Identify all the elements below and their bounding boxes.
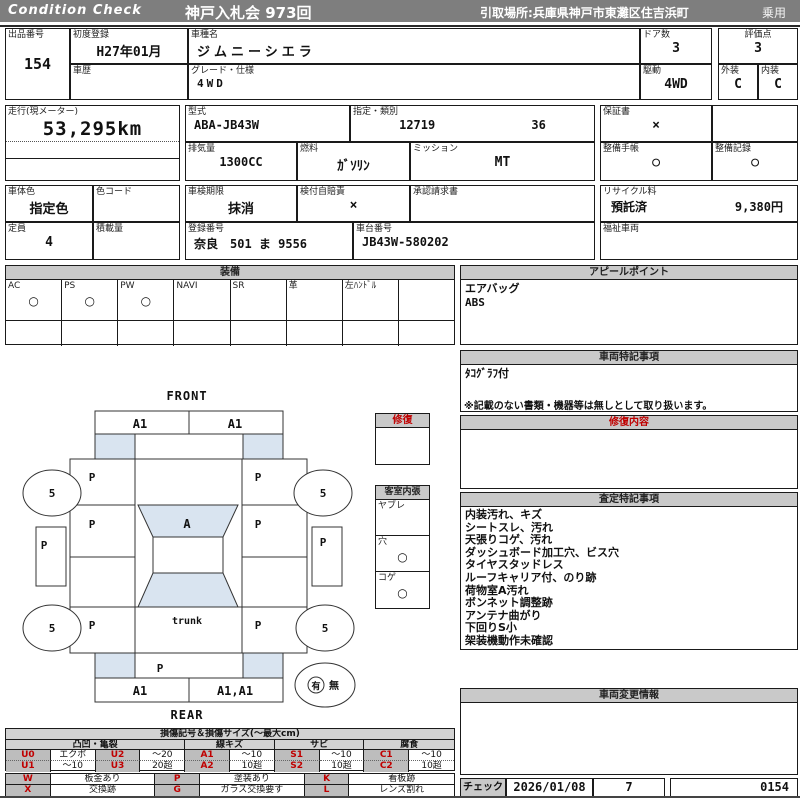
repair-flag-box: 修復 xyxy=(375,413,430,465)
bottom-rule xyxy=(0,796,800,798)
insurance-label: 検付自賠責 xyxy=(298,186,409,198)
maintenance-record-cell: 整備記録 ○ xyxy=(712,142,798,181)
taillight-left xyxy=(95,653,135,678)
check-inspector-value: 7 xyxy=(594,779,664,796)
first-registration-label: 初度登録 xyxy=(71,29,187,41)
legend-cell: U0 xyxy=(6,750,51,761)
damage-legend-table: 損傷記号＆損傷サイズ(～最大cm) 凸凹・亀裂 線キズ サビ 腐食 U0 エクボ… xyxy=(5,728,455,771)
legend-cell: U2 xyxy=(96,750,141,761)
recycle-fee-value: 9,380円 xyxy=(735,198,783,215)
exterior-grade-label: 外装 xyxy=(719,65,757,77)
displacement-label: 排気量 xyxy=(186,143,296,155)
cabin-lining-box: 客室内張 ヤブレ 穴 ○ コゲ ○ xyxy=(375,485,430,609)
windshield-mark: A xyxy=(183,517,191,531)
check-label-cell: チェック xyxy=(460,778,506,797)
warranty-value: × xyxy=(601,118,711,133)
fuel-value: ｶﾞｿﾘﾝ xyxy=(298,155,409,174)
insurance-cell: 検付自賠責 × xyxy=(297,185,410,222)
legend-cell: U1 xyxy=(6,761,51,772)
side-panel-left-mark: P xyxy=(41,539,48,552)
mileage-label: 走行(現メーター) xyxy=(6,106,179,118)
tear-label: ヤブレ xyxy=(376,500,429,512)
score-label: 評価点 xyxy=(719,29,797,41)
auction-title: 神戸入札会 973回 xyxy=(185,2,312,23)
burn-label: コゲ xyxy=(376,572,429,584)
check-date-cell: 2026/01/08 xyxy=(506,778,593,797)
doors-label: ドア数 xyxy=(641,29,711,41)
maintenance-book-label: 整備手帳 xyxy=(601,143,711,155)
legend-cell: ～10 xyxy=(230,750,275,761)
equipment-cell-extra xyxy=(399,280,454,320)
insurance-value: × xyxy=(298,198,409,213)
first-registration-value: H27年01月 xyxy=(71,41,187,60)
model-name-label: 車種名 xyxy=(189,29,639,41)
legend-cell: 10超 xyxy=(409,761,454,772)
equipment-title: 装備 xyxy=(6,266,454,280)
interior-grade-value: C xyxy=(759,77,797,92)
pickup-location: 引取場所:兵庫県神戸市東灘区住吉浜町 xyxy=(480,4,689,21)
maintenance-record-label: 整備記録 xyxy=(713,143,797,155)
vehicle-notes-panel: 車両特記事項 ﾀｺｸﾞﾗﾌ付 ※記載のない書類・機器等は無しとして取り扱います。 xyxy=(460,350,798,412)
legend-group: 凸凹・亀裂 xyxy=(6,740,185,749)
brand-title: Condition Check xyxy=(8,3,142,18)
drive-cell: 駆動 4WD xyxy=(640,64,712,100)
rear-bumper-left-mark: A1 xyxy=(133,684,147,698)
capacity-value: 4 xyxy=(6,235,92,250)
legend-cell: C1 xyxy=(364,750,409,761)
legend-cell: S2 xyxy=(275,761,320,772)
headlight-right xyxy=(243,434,283,459)
interior-grade-cell: 内装 C xyxy=(758,64,798,100)
legend-cell: 塗装あり xyxy=(200,774,305,784)
inspection-value: 抹消 xyxy=(186,198,296,217)
maintenance-book-value: ○ xyxy=(601,155,711,170)
repair-content-body xyxy=(461,430,797,434)
chassis-number-label: 車台番号 xyxy=(354,223,594,235)
wheel-front-left-mark: 5 xyxy=(49,487,56,500)
check-inspector-cell: 7 xyxy=(593,778,665,797)
fender-left-mark: P xyxy=(89,471,96,484)
drive-label: 駆動 xyxy=(641,65,711,77)
front-bumper-left-mark: A1 xyxy=(133,417,147,431)
roof xyxy=(153,537,223,573)
equipment-cell-navi: NAVI xyxy=(174,280,230,320)
repair-legend-table: W 板金あり P 塗装あり K 看板跡 X 交換跡 G ガラス交換要す L レン… xyxy=(5,773,455,797)
legend-cell: S1 xyxy=(275,750,320,761)
fender-right-mark: P xyxy=(255,471,262,484)
change-info-body xyxy=(461,703,797,707)
equipment-cell-ps: PS ○ xyxy=(62,280,118,320)
body-color-cell: 車体色 指定色 xyxy=(5,185,93,222)
legend-group: 線キズ xyxy=(185,740,275,749)
legend-cell: C2 xyxy=(364,761,409,772)
wheel-rear-right-mark: 5 xyxy=(322,622,329,635)
assessment-panel: 査定特記事項 内装汚れ、キズ シートスレ、汚れ 天張りコゲ、汚れ ダッシュボード… xyxy=(460,492,798,650)
chassis-number-cell: 車台番号 JB43W-580202 xyxy=(353,222,595,260)
change-info-title: 車両変更情報 xyxy=(461,689,797,703)
displacement-cell: 排気量 1300CC xyxy=(185,142,297,181)
model-code-label: 型式 xyxy=(186,106,349,118)
lot-number-label: 出品番号 xyxy=(6,29,69,41)
assessment-line: 天張りコゲ、汚れ xyxy=(465,534,793,547)
class-number: 36 xyxy=(531,118,545,132)
presence-stamp xyxy=(295,663,355,707)
transmission-value: MT xyxy=(411,155,594,170)
approval-cell: 承認請求書 xyxy=(410,185,595,222)
repair-flag-title: 修復 xyxy=(376,414,429,428)
door-left-mark: P xyxy=(89,518,96,531)
legend-cell: ガラス交換要す xyxy=(200,785,305,796)
rear-window xyxy=(138,573,238,607)
inspection-label: 車検期限 xyxy=(186,186,296,198)
appeal-line: エアバッグ xyxy=(465,282,793,296)
wheel-front-right-mark: 5 xyxy=(320,487,327,500)
chassis-number-value: JB43W-580202 xyxy=(354,235,594,249)
grade-cell: グレード・仕様 4WD xyxy=(188,64,640,100)
history-label: 車歴 xyxy=(71,65,187,77)
front-bumper-right-mark: A1 xyxy=(228,417,242,431)
lot-number-value: 154 xyxy=(6,55,69,73)
legend-cell: エクボ xyxy=(51,750,96,761)
transmission-cell: ミッション MT xyxy=(410,142,595,181)
trunk-label: trunk xyxy=(172,616,202,627)
equipment-cell-ac: AC ○ xyxy=(6,280,62,320)
registration-number-label: 登録番号 xyxy=(186,223,352,235)
serial-number-cell: 0154 xyxy=(670,778,798,797)
rear-panel-mark: P xyxy=(157,662,164,675)
vehicle-notes-disclaimer: ※記載のない書類・機器等は無しとして取り扱います。 xyxy=(461,397,797,412)
equipment-table: 装備 AC ○ PS ○ PW ○ NAVI SR 革 xyxy=(5,265,455,345)
side-panel-right xyxy=(312,527,342,586)
grade-label: グレード・仕様 xyxy=(189,65,639,77)
wheel-rear-left-mark: 5 xyxy=(49,622,56,635)
legend-cell: 10超 xyxy=(230,761,275,772)
legend-cell: G xyxy=(155,785,200,796)
welfare-cell: 福祉車両 xyxy=(600,222,798,260)
equipment-cell-sr: SR xyxy=(231,280,287,320)
load-label: 積載量 xyxy=(94,223,179,235)
recycle-fee-label: リサイクル料 xyxy=(601,186,797,198)
assessment-line: 内装汚れ、キズ xyxy=(465,509,793,522)
inspection-cell: 車検期限 抹消 xyxy=(185,185,297,222)
color-code-label: 色コード xyxy=(94,186,179,198)
type-number: 12719 xyxy=(399,118,435,132)
exterior-grade-value: C xyxy=(719,77,757,92)
mileage-cell: 走行(現メーター) 53,295km xyxy=(5,105,180,181)
equipment-cell-leather: 革 xyxy=(287,280,343,320)
door-right-mark: P xyxy=(255,518,262,531)
model-code-value: ABA-JB43W xyxy=(186,118,349,132)
check-date-value: 2026/01/08 xyxy=(507,779,592,796)
legend-cell: 10超 xyxy=(320,761,365,772)
legend-cell: A1 xyxy=(185,750,230,761)
assessment-title: 査定特記事項 xyxy=(461,493,797,507)
body-color-value: 指定色 xyxy=(6,198,92,217)
warranty-label: 保証書 xyxy=(601,106,711,118)
legend-cell: ～10 xyxy=(51,761,96,772)
appeal-points-title: アピールポイント xyxy=(461,266,797,280)
side-panel-right-mark: P xyxy=(320,536,327,549)
model-name-cell: 車種名 ジムニーシエラ xyxy=(188,28,640,64)
fuel-label: 燃料 xyxy=(298,143,409,155)
lot-number-cell: 出品番号 154 xyxy=(5,28,70,100)
header-bar: Condition Check 神戸入札会 973回 引取場所:兵庫県神戸市東灘… xyxy=(0,0,800,22)
recycle-status: 預託済 xyxy=(611,198,647,215)
diagram-front-label: FRONT xyxy=(166,389,207,403)
assessment-line: ボンネット調整跡 xyxy=(465,597,793,610)
load-cell: 積載量 xyxy=(93,222,180,260)
registration-number-cell: 登録番号 奈良 501 ま 9556 xyxy=(185,222,353,260)
equipment-mark: ○ xyxy=(62,294,117,308)
vehicle-class: 乗用 xyxy=(762,4,786,21)
legend-group: サビ xyxy=(275,740,365,749)
score-value: 3 xyxy=(719,41,797,56)
legend-cell: 看板跡 xyxy=(349,774,454,784)
quarter-left-mark: P xyxy=(89,619,96,632)
drive-value: 4WD xyxy=(641,77,711,92)
displacement-value: 1300CC xyxy=(186,155,296,169)
doors-value: 3 xyxy=(641,41,711,56)
recycle-fee-cell: リサイクル料 預託済 9,380円 xyxy=(600,185,798,222)
capacity-label: 定員 xyxy=(6,223,92,235)
first-registration-cell: 初度登録 H27年01月 xyxy=(70,28,188,64)
warranty-cell: 保証書 × xyxy=(600,105,712,142)
legend-cell: レンズ割れ xyxy=(349,785,454,796)
legend-cell: U3 xyxy=(96,761,141,772)
legend-cell: 20超 xyxy=(140,761,185,772)
legend-cell: 交換跡 xyxy=(51,785,156,796)
legend-cell: P xyxy=(155,774,200,784)
assessment-line: 架装機動作未確認 xyxy=(465,635,793,648)
type-class-label: 指定・類別 xyxy=(351,106,594,118)
vehicle-notes-line: ﾀｺｸﾞﾗﾌ付 xyxy=(465,367,793,381)
legend-group: 腐食 xyxy=(364,740,454,749)
model-code-cell: 型式 ABA-JB43W xyxy=(185,105,350,142)
top-rule xyxy=(0,25,800,27)
fuel-cell: 燃料 ｶﾞｿﾘﾝ xyxy=(297,142,410,181)
vehicle-notes-title: 車両特記事項 xyxy=(461,351,797,365)
mileage-value: 53,295km xyxy=(6,118,179,140)
legend-cell: ～20 xyxy=(140,750,185,761)
change-info-panel: 車両変更情報 xyxy=(460,688,798,775)
equipment-cell-lhd: 左ﾊﾝﾄﾞﾙ xyxy=(343,280,399,320)
legend-cell: L xyxy=(305,785,350,796)
warranty-empty-cell xyxy=(712,105,798,142)
model-name-value: ジムニーシエラ xyxy=(189,41,639,60)
headlight-left xyxy=(95,434,135,459)
appeal-line: ABS xyxy=(465,296,793,310)
legend-cell: K xyxy=(305,774,350,784)
legend-cell: A2 xyxy=(185,761,230,772)
legend-title: 損傷記号＆損傷サイズ(～最大cm) xyxy=(6,729,454,739)
legend-cell: W xyxy=(6,774,51,784)
equipment-mark: ○ xyxy=(118,294,173,308)
interior-grade-label: 内装 xyxy=(759,65,797,77)
equipment-mark: ○ xyxy=(6,294,61,308)
legend-cell: ～10 xyxy=(409,750,454,761)
hole-mark: ○ xyxy=(376,550,429,564)
registration-number-value: 奈良 501 ま 9556 xyxy=(186,235,352,252)
color-code-cell: 色コード xyxy=(93,185,180,222)
rear-bumper-right-mark: A1,A1 xyxy=(217,684,253,698)
condition-check-sheet: Condition Check 神戸入札会 973回 引取場所:兵庫県神戸市東灘… xyxy=(0,0,800,800)
score-cell: 評価点 3 xyxy=(718,28,798,64)
legend-cell: ～10 xyxy=(320,750,365,761)
body-color-label: 車体色 xyxy=(6,186,92,198)
assessment-line: ルーフキャリア付、のり跡 xyxy=(465,572,793,585)
exterior-grade-cell: 外装 C xyxy=(718,64,758,100)
burn-mark: ○ xyxy=(376,586,429,600)
welfare-label: 福祉車両 xyxy=(601,223,797,235)
repair-content-title: 修復内容 xyxy=(461,416,797,430)
approval-label: 承認請求書 xyxy=(411,186,594,198)
grade-value: 4WD xyxy=(189,77,639,90)
quarter-right-mark: P xyxy=(255,619,262,632)
legend-cell: 板金あり xyxy=(51,774,156,784)
capacity-cell: 定員 4 xyxy=(5,222,93,260)
legend-cell: X xyxy=(6,785,51,796)
diagram-rear-label: REAR xyxy=(171,708,204,722)
serial-number-value: 0154 xyxy=(671,779,797,796)
appeal-points-panel: アピールポイント エアバッグ ABS xyxy=(460,265,798,345)
taillight-right xyxy=(243,653,283,678)
equipment-cell-pw: PW ○ xyxy=(118,280,174,320)
presence-yes: 有 xyxy=(311,680,320,692)
type-class-cell: 指定・類別 12719 36 xyxy=(350,105,595,142)
hole-label: 穴 xyxy=(376,536,429,548)
side-panel-left xyxy=(36,527,66,586)
maintenance-book-cell: 整備手帳 ○ xyxy=(600,142,712,181)
transmission-label: ミッション xyxy=(411,143,594,155)
cabin-lining-title: 客室内張 xyxy=(376,486,429,500)
history-cell: 車歴 xyxy=(70,64,188,100)
doors-cell: ドア数 3 xyxy=(640,28,712,64)
presence-no: 無 xyxy=(329,679,339,692)
repair-content-panel: 修復内容 xyxy=(460,415,798,489)
maintenance-record-value: ○ xyxy=(713,155,797,170)
